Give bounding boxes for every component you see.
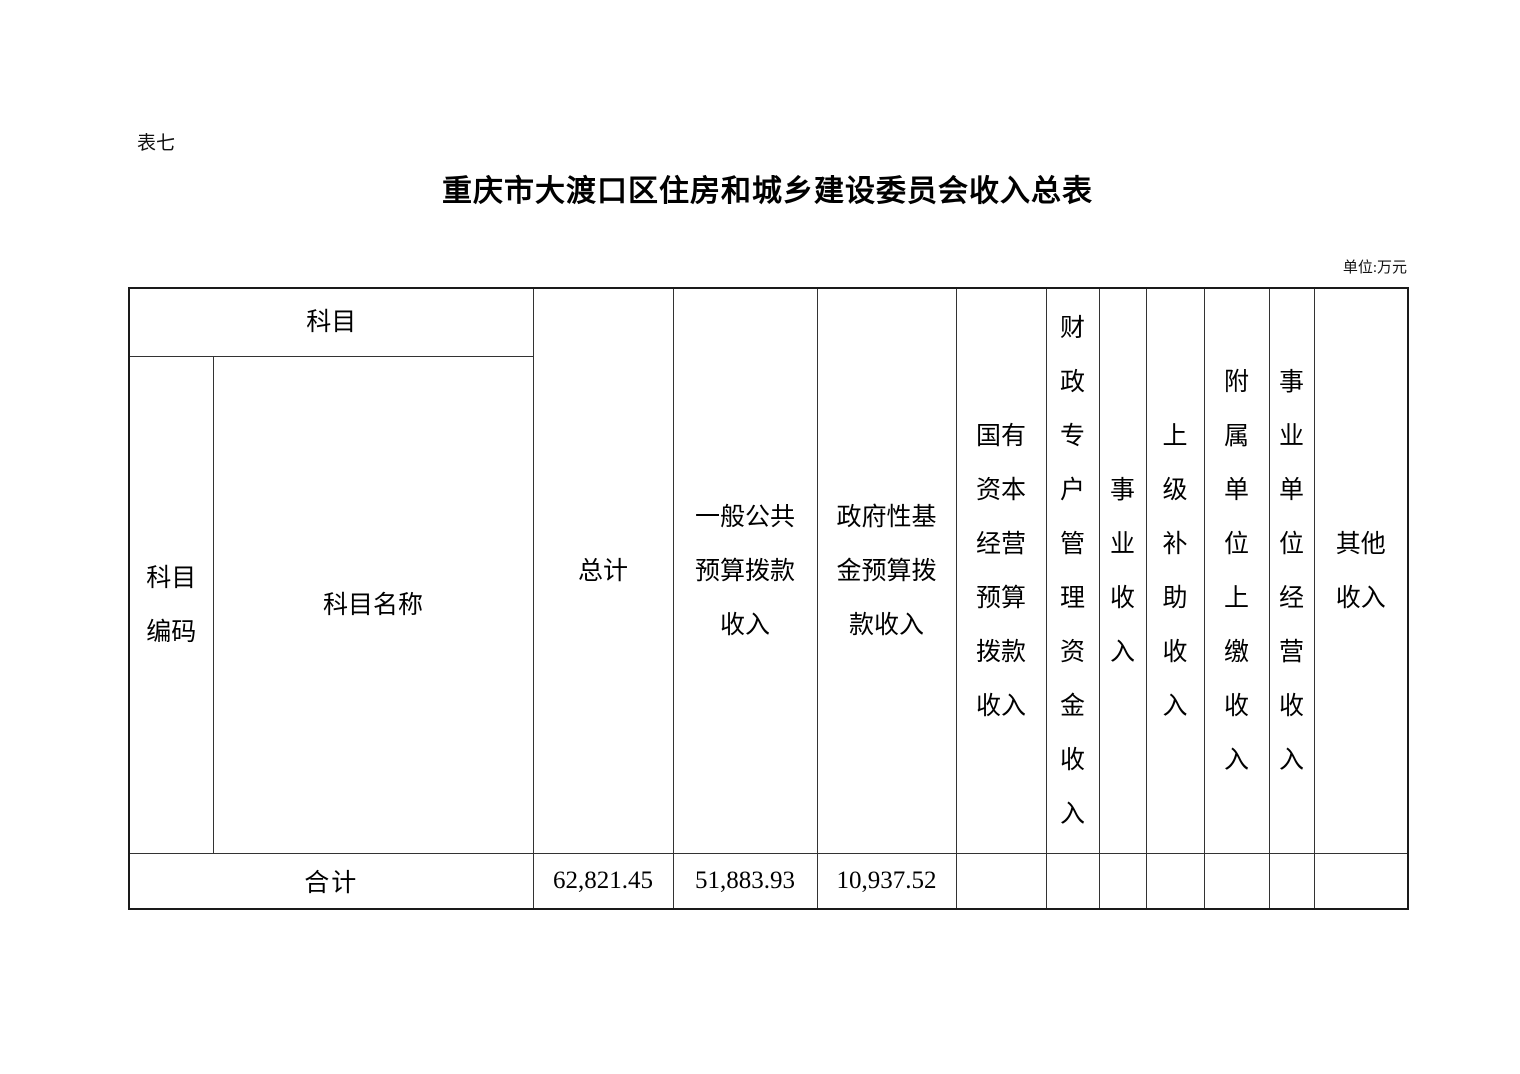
header-state-capital-budget: 国有 资本 经营 预算 拨款 收入 <box>956 288 1046 853</box>
income-summary-table: 科目 总计 一般公共 预算拨款 收入 政府性基 金预算拨 款收入 国有 资本 经… <box>128 287 1409 910</box>
total-row-government-fund-value: 10,937.52 <box>817 853 956 909</box>
header-government-fund-budget: 政府性基 金预算拨 款收入 <box>817 288 956 853</box>
document-page: 表七 重庆市大渡口区住房和城乡建设委员会收入总表 单位:万元 科目 总计 一般公… <box>0 0 1520 1074</box>
total-row-fiscal-account-value <box>1046 853 1099 909</box>
total-row-other-income-value <box>1314 853 1408 909</box>
header-subject-name: 科目名称 <box>213 356 533 853</box>
header-affiliated-unit-remit: 附 属 单 位 上 缴 收 入 <box>1204 288 1269 853</box>
total-row-label: 合计 <box>129 853 533 909</box>
header-row-1: 科目 总计 一般公共 预算拨款 收入 政府性基 金预算拨 款收入 国有 资本 经… <box>129 288 1408 356</box>
table-number-label: 表七 <box>137 128 175 155</box>
total-row: 合计 62,821.45 51,883.93 10,937.52 <box>129 853 1408 909</box>
header-superior-subsidy: 上 级 补 助 收 入 <box>1146 288 1204 853</box>
header-subject: 科目 <box>129 288 533 356</box>
header-general-public-budget: 一般公共 预算拨款 收入 <box>673 288 817 853</box>
total-row-business-income-value <box>1099 853 1146 909</box>
page-title: 重庆市大渡口区住房和城乡建设委员会收入总表 <box>128 166 1407 210</box>
total-row-institution-operating-value <box>1269 853 1314 909</box>
total-row-total-value: 62,821.45 <box>533 853 673 909</box>
header-subject-code: 科目 编码 <box>129 356 213 853</box>
header-business-income: 事 业 收 入 <box>1099 288 1146 853</box>
header-institution-operating: 事 业 单 位 经 营 收 入 <box>1269 288 1314 853</box>
header-fiscal-special-account: 财 政 专 户 管 理 资 金 收 入 <box>1046 288 1099 853</box>
total-row-general-public-value: 51,883.93 <box>673 853 817 909</box>
unit-note: 单位:万元 <box>128 256 1407 277</box>
header-total: 总计 <box>533 288 673 853</box>
total-row-superior-subsidy-value <box>1146 853 1204 909</box>
total-row-state-capital-value <box>956 853 1046 909</box>
header-other-income: 其他 收入 <box>1314 288 1408 853</box>
total-row-affiliated-remit-value <box>1204 853 1269 909</box>
